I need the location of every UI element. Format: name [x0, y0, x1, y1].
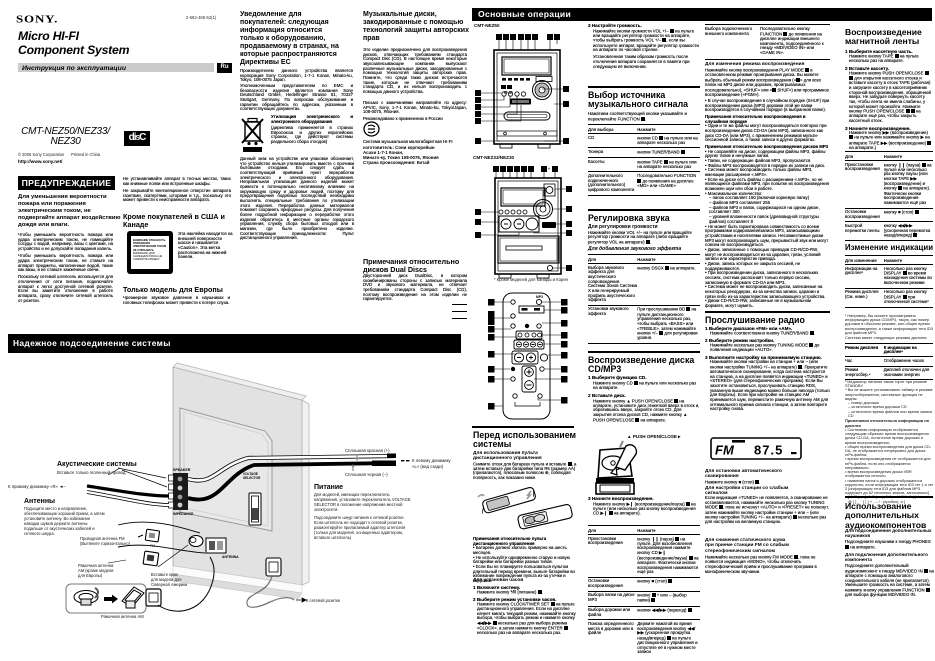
- svg-text:Сплошная красная (+): Сплошная красная (+): [345, 448, 390, 453]
- svg-text:для Европы): для Европы): [78, 573, 103, 578]
- svg-text:Рамочная антенна АМ: Рамочная антенна АМ: [101, 614, 144, 619]
- svg-text:IMPEDANCE: IMPEDANCE: [173, 512, 194, 516]
- svg-text:Подсоедините шнур питания к се: Подсоедините шнур питания к сетевой розе…: [314, 515, 407, 540]
- svg-text:Питание: Питание: [314, 484, 343, 491]
- svg-text:Северной Америки: Северной Америки: [151, 582, 187, 587]
- svg-text:ANTENNA: ANTENNA: [222, 555, 239, 559]
- svg-text:FM: FM: [715, 443, 735, 458]
- svg-text:Антенны: Антенны: [24, 498, 55, 505]
- svg-text:Сплошная черная (–): Сплошная черная (–): [345, 472, 388, 477]
- svg-text:Акустические системы: Акустические системы: [57, 461, 137, 468]
- svg-text:К левому динамику: К левому динамику: [412, 458, 452, 463]
- svg-text:87.5: 87.5: [754, 443, 783, 458]
- svg-text:SPEAKER: SPEAKER: [173, 468, 191, 472]
- svg-text:К сетевой розетке: К сетевой розетке: [306, 598, 341, 603]
- svg-text:*: *: [548, 168, 550, 174]
- svg-text:Подыщите место и направление,: Подыщите место и направление, обеспечива…: [24, 506, 106, 536]
- svg-text:(Вытяните горизонтально): (Вытяните горизонтально): [80, 541, 131, 546]
- svg-text:К правому динамику «R» ◄–: К правому динамику «R» ◄–: [8, 484, 66, 489]
- svg-text:SELECTOR: SELECTOR: [243, 476, 261, 480]
- svg-text:Вставьте только оголенный пров: Вставьте только оголенный провод.: [57, 470, 127, 475]
- svg-text:MP3: MP3: [536, 295, 543, 299]
- svg-text:«L» (вид сзади): «L» (вид сзади): [412, 464, 444, 469]
- svg-text:Для моделей, имеющих переключа: Для моделей, имеющих переключатель напря…: [314, 492, 412, 512]
